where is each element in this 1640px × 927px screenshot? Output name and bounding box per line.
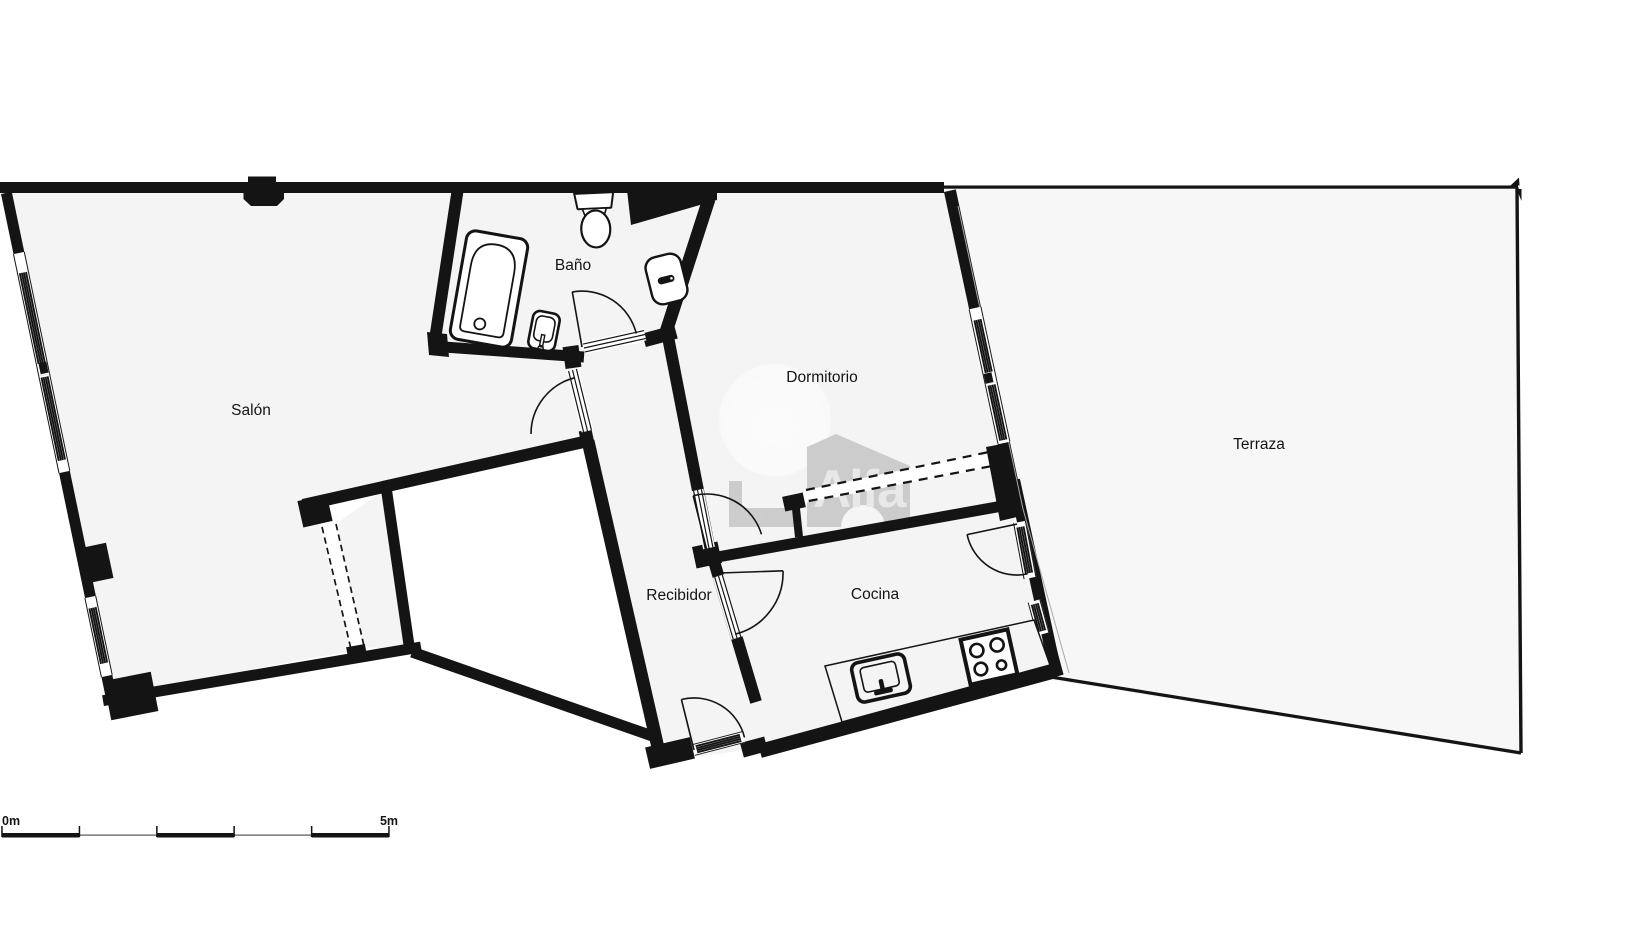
svg-text:0m: 0m — [2, 814, 20, 828]
svg-text:Salón: Salón — [231, 402, 271, 419]
svg-text:Baño: Baño — [555, 257, 591, 274]
svg-text:Terraza: Terraza — [1233, 436, 1285, 453]
svg-text:5m: 5m — [380, 814, 398, 828]
svg-text:Recibidor: Recibidor — [646, 587, 711, 604]
svg-text:Cocina: Cocina — [851, 586, 900, 603]
svg-text:Dormitorio: Dormitorio — [786, 369, 857, 386]
